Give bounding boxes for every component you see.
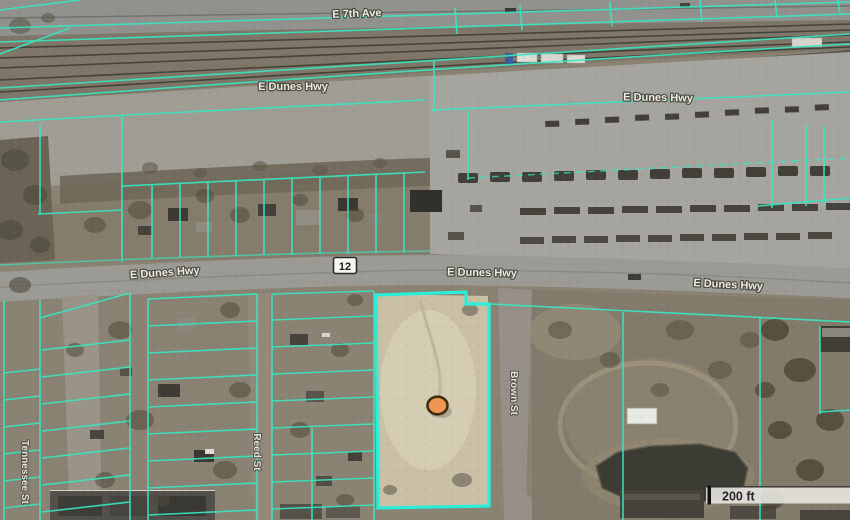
scale-bar: 200 ft bbox=[706, 486, 850, 505]
road-label-e-7th-ave: E 7th Ave bbox=[332, 7, 382, 21]
road-label-dunes-hwy-2: E Dunes Hwy bbox=[623, 91, 694, 104]
scale-bar-tick bbox=[708, 486, 712, 505]
street-label-brown-st: Brown St bbox=[508, 371, 519, 416]
scale-bar-label: 200 ft bbox=[722, 490, 755, 504]
road-label-dunes-hwy-1: E Dunes Hwy bbox=[258, 81, 329, 93]
map-canvas[interactable]: E 7th Ave E Dunes Hwy E Dunes Hwy E Dune… bbox=[0, 0, 850, 520]
street-label-tennessee-st: Tennessee St bbox=[19, 440, 30, 504]
street-label-reed-st: Reed St bbox=[251, 433, 262, 471]
route-shield-number: 12 bbox=[339, 261, 351, 273]
map-viewport[interactable]: E 7th Ave E Dunes Hwy E Dunes Hwy E Dune… bbox=[0, 0, 850, 520]
road-label-dunes-hwy-4: E Dunes Hwy bbox=[447, 266, 518, 279]
route-12-shield: 12 bbox=[334, 258, 357, 274]
marker-dot[interactable] bbox=[428, 397, 448, 415]
